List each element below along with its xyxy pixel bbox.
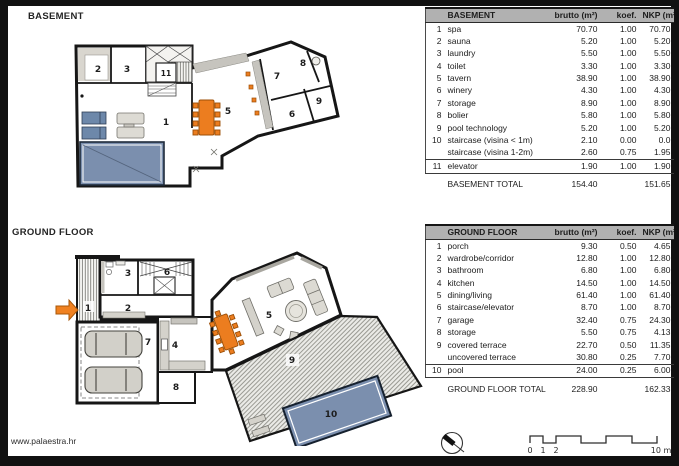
table-cell: sauna xyxy=(445,35,546,47)
table-cell: staircase/elevator xyxy=(445,302,546,314)
table-cell: 0.00 xyxy=(601,135,640,147)
table-cell: 1.00 xyxy=(601,48,640,60)
table-row: 4kitchen14.501.0014.50 xyxy=(426,277,674,289)
room-label: 4 xyxy=(172,341,178,351)
table-total-row: BASEMENT TOTAL 154.40 151.65 xyxy=(426,173,674,193)
table-cell: 1 xyxy=(426,23,445,36)
table-cell: 5.20 xyxy=(546,122,601,134)
table-cell: 7 xyxy=(426,97,445,109)
table-cell: 0.50 xyxy=(601,339,640,351)
table-cell: spa xyxy=(445,23,546,36)
header-koef: koef. xyxy=(601,8,640,23)
table-cell: 5.20 xyxy=(640,35,674,47)
boiler-unit xyxy=(312,57,320,65)
total-brutto: 154.40 xyxy=(546,173,601,193)
table-cell: 32.40 xyxy=(546,314,601,326)
table-row: 7storage8.901.008.90 xyxy=(426,97,674,109)
header-room: GROUND FLOOR xyxy=(445,225,546,240)
header-nkp: NKP (m²) xyxy=(640,225,674,240)
table-cell: 5 xyxy=(426,290,445,302)
table-cell: 22.70 xyxy=(546,339,601,351)
room-label: 6 xyxy=(289,110,295,120)
basement-pool xyxy=(80,142,164,185)
room-label: 3 xyxy=(124,65,130,75)
basement-table: BASEMENT brutto (m²) koef. NKP (m²) 1spa… xyxy=(425,7,674,193)
table-cell: 9 xyxy=(426,122,445,134)
table-cell: 5.20 xyxy=(546,35,601,47)
room-label: 9 xyxy=(289,356,295,366)
header-room: BASEMENT xyxy=(445,8,546,23)
table-cell: storage xyxy=(445,97,546,109)
table-cell: 1.90 xyxy=(640,160,674,173)
table-cell: 8.70 xyxy=(640,302,674,314)
table-cell: 1.00 xyxy=(601,110,640,122)
garage-car xyxy=(85,367,142,393)
table-cell: 6 xyxy=(426,85,445,97)
table-cell: 3.30 xyxy=(546,60,601,72)
table-cell: uncovered terrace xyxy=(445,352,546,365)
scale-label: 0 xyxy=(527,446,532,455)
entrance-arrow-icon xyxy=(56,300,78,320)
scale-label: 1 xyxy=(540,446,545,455)
table-cell: 8.90 xyxy=(640,97,674,109)
table-row: 3bathroom6.801.006.80 xyxy=(426,265,674,277)
table-row: 8storage5.500.754.13 xyxy=(426,327,674,339)
table-cell: 61.40 xyxy=(546,290,601,302)
table-cell: 3 xyxy=(426,48,445,60)
legend: 0 1 2 10 m xyxy=(430,424,672,460)
floor-plan-sheet: BASEMENT GROUND FLOOR www.palaestra.hr xyxy=(0,0,679,466)
table-cell: 8 xyxy=(426,327,445,339)
table-cell: kitchen xyxy=(445,277,546,289)
table-cell: bolier xyxy=(445,110,546,122)
room-label: 2 xyxy=(125,304,131,314)
table-cell: 6 xyxy=(426,302,445,314)
table-cell: 1.00 xyxy=(601,122,640,134)
table-cell: 38.90 xyxy=(546,73,601,85)
table-cell: 9 xyxy=(426,339,445,351)
table-cell xyxy=(426,147,445,160)
room-label: 2 xyxy=(95,65,101,75)
header-brutto: brutto (m²) xyxy=(546,8,601,23)
table-cell: storage xyxy=(445,327,546,339)
table-cell: pool xyxy=(445,364,546,377)
table-cell: 5.20 xyxy=(640,122,674,134)
table-cell: 6.80 xyxy=(546,265,601,277)
table-cell: covered terrace xyxy=(445,339,546,351)
table-cell: staircase (visina < 1m) xyxy=(445,135,546,147)
room-label: 8 xyxy=(300,59,306,69)
table-cell: 4.30 xyxy=(546,85,601,97)
table-cell: 0.75 xyxy=(601,314,640,326)
table-cell xyxy=(426,352,445,365)
column-dot xyxy=(80,94,83,97)
table-cell: elevator xyxy=(445,160,546,173)
room-label: 3 xyxy=(125,269,131,279)
table-row: uncovered terrace30.800.257.70 xyxy=(426,352,674,365)
table-cell: 1 xyxy=(426,240,445,253)
scale-label: 10 m xyxy=(651,446,672,455)
total-nkp: 162.33 xyxy=(640,378,674,398)
table-cell: 0.25 xyxy=(601,352,640,365)
room-label: 7 xyxy=(274,72,280,82)
table-total-row: GROUND FLOOR TOTAL 228.90 162.33 xyxy=(426,378,674,398)
table-row: 10staircase (visina < 1m)2.100.000.0 xyxy=(426,135,674,147)
table-cell: bathroom xyxy=(445,265,546,277)
table-row: 1spa70.701.0070.70 xyxy=(426,23,674,36)
ground-floor-plan: 1 2 3 4 5 6 7 8 9 10 xyxy=(42,244,440,446)
table-cell: 1.00 xyxy=(601,290,640,302)
table-cell: 1.00 xyxy=(601,302,640,314)
table-cell: 1.00 xyxy=(601,23,640,36)
table-cell: 1.00 xyxy=(601,73,640,85)
coffee-table xyxy=(286,301,307,322)
table-cell: 7 xyxy=(426,314,445,326)
table-cell: 1.00 xyxy=(601,60,640,72)
table-cell: 4.30 xyxy=(640,85,674,97)
header-num xyxy=(426,225,445,240)
table-cell: 11 xyxy=(426,160,445,173)
header-koef: koef. xyxy=(601,225,640,240)
table-cell: 11.35 xyxy=(640,339,674,351)
table-cell: 5 xyxy=(426,73,445,85)
table-cell: garage xyxy=(445,314,546,326)
header-brutto: brutto (m²) xyxy=(546,225,601,240)
table-cell: 1.00 xyxy=(601,265,640,277)
table-cell: 1.00 xyxy=(601,35,640,47)
table-cell: 1.00 xyxy=(601,277,640,289)
table-row: staircase (visina 1-2m)2.600.751.95 xyxy=(426,147,674,160)
table-cell: 8 xyxy=(426,110,445,122)
table-cell: 70.70 xyxy=(640,23,674,36)
table-cell: 2 xyxy=(426,252,445,264)
table-cell: 0.25 xyxy=(601,364,640,377)
table-cell: 3.30 xyxy=(640,60,674,72)
table-cell: 10 xyxy=(426,364,445,377)
garage-car xyxy=(85,331,142,357)
room-label: 8 xyxy=(173,383,179,393)
basement-title: BASEMENT xyxy=(28,11,84,22)
table-row: 2sauna5.201.005.20 xyxy=(426,35,674,47)
table-row: 9pool technology5.201.005.20 xyxy=(426,122,674,134)
basement-floor-plan: 1 2 3 5 6 7 8 9 11 xyxy=(55,34,435,206)
header-num xyxy=(426,8,445,23)
table-cell: 8.90 xyxy=(546,97,601,109)
table-cell: 14.50 xyxy=(640,277,674,289)
table-cell: 12.80 xyxy=(640,252,674,264)
porch-top-wall xyxy=(75,255,120,259)
ground-left-block xyxy=(100,260,193,317)
total-label: GROUND FLOOR TOTAL xyxy=(445,378,546,398)
table-cell: 5.80 xyxy=(640,110,674,122)
table-row: 10pool24.000.256.00 xyxy=(426,364,674,377)
table-cell: 9.30 xyxy=(546,240,601,253)
scale-label: 2 xyxy=(553,446,558,455)
total-label: BASEMENT TOTAL xyxy=(445,173,546,193)
room-label: 1 xyxy=(85,304,91,314)
table-row: 11elevator1.901.001.90 xyxy=(426,160,674,173)
table-cell: 30.80 xyxy=(546,352,601,365)
table-cell: 38.90 xyxy=(640,73,674,85)
table-row: 5tavern38.901.0038.90 xyxy=(426,73,674,85)
room-label: 1 xyxy=(163,118,169,128)
table-cell: 70.70 xyxy=(546,23,601,36)
table-cell: 1.00 xyxy=(601,97,640,109)
table-cell: laundry xyxy=(445,48,546,60)
table-cell: 8.70 xyxy=(546,302,601,314)
room-label: 11 xyxy=(161,69,171,78)
table-cell: 4.65 xyxy=(640,240,674,253)
table-row: 8bolier5.801.005.80 xyxy=(426,110,674,122)
table-cell: 2.60 xyxy=(546,147,601,160)
table-cell: 1.90 xyxy=(546,160,601,173)
table-row: 6staircase/elevator8.701.008.70 xyxy=(426,302,674,314)
table-cell: 4 xyxy=(426,277,445,289)
table-row: 3laundry5.501.005.50 xyxy=(426,48,674,60)
total-brutto: 228.90 xyxy=(546,378,601,398)
scale-bar: 0 1 2 10 m xyxy=(527,436,671,455)
table-cell: 0.75 xyxy=(601,147,640,160)
table-cell: tavern xyxy=(445,73,546,85)
table-cell: 4 xyxy=(426,60,445,72)
table-cell: 2.10 xyxy=(546,135,601,147)
table-header-row: GROUND FLOOR brutto (m²) koef. NKP (m²) xyxy=(426,225,674,240)
table-cell: 5.50 xyxy=(640,48,674,60)
compass-icon xyxy=(442,433,465,454)
room-label: 10 xyxy=(325,410,338,420)
table-cell: 12.80 xyxy=(546,252,601,264)
header-nkp: NKP (m²) xyxy=(640,8,674,23)
table-cell: 6.80 xyxy=(640,265,674,277)
table-cell: 24.00 xyxy=(546,364,601,377)
table-cell: toilet xyxy=(445,60,546,72)
table-cell: 61.40 xyxy=(640,290,674,302)
table-cell: 14.50 xyxy=(546,277,601,289)
ground-floor-title: GROUND FLOOR xyxy=(12,227,94,238)
table-header-row: BASEMENT brutto (m²) koef. NKP (m²) xyxy=(426,8,674,23)
table-cell: 1.00 xyxy=(601,252,640,264)
table-cell: porch xyxy=(445,240,546,253)
table-row: 1porch9.300.504.65 xyxy=(426,240,674,253)
table-row: 9covered terrace22.700.5011.35 xyxy=(426,339,674,351)
table-cell: 1.95 xyxy=(640,147,674,160)
room-label: 5 xyxy=(225,107,231,117)
table-cell: 5.80 xyxy=(546,110,601,122)
table-cell: wardrobe/corridor xyxy=(445,252,546,264)
table-cell: pool technology xyxy=(445,122,546,134)
table-cell: 1.00 xyxy=(601,160,640,173)
table-cell: 1.00 xyxy=(601,85,640,97)
table-row: 5dining/living61.401.0061.40 xyxy=(426,290,674,302)
table-cell: 5.50 xyxy=(546,48,601,60)
table-cell: dining/living xyxy=(445,290,546,302)
table-cell: 24.30 xyxy=(640,314,674,326)
table-cell: 10 xyxy=(426,135,445,147)
table-cell: winery xyxy=(445,85,546,97)
table-row: 2wardrobe/corridor12.801.0012.80 xyxy=(426,252,674,264)
table-cell: 2 xyxy=(426,35,445,47)
table-row: 4toilet3.301.003.30 xyxy=(426,60,674,72)
table-cell: 0.0 xyxy=(640,135,674,147)
room-label: 6 xyxy=(164,268,170,278)
total-nkp: 151.65 xyxy=(640,173,674,193)
table-cell: 6.00 xyxy=(640,364,674,377)
table-cell: 4.13 xyxy=(640,327,674,339)
table-cell: 7.70 xyxy=(640,352,674,365)
room-label: 7 xyxy=(145,338,151,348)
table-cell: 5.50 xyxy=(546,327,601,339)
table-row: 7garage32.400.7524.30 xyxy=(426,314,674,326)
room-label: 5 xyxy=(266,311,272,321)
table-cell: staircase (visina 1-2m) xyxy=(445,147,546,160)
table-cell: 3 xyxy=(426,265,445,277)
table-cell: 0.75 xyxy=(601,327,640,339)
ground-floor-table: GROUND FLOOR brutto (m²) koef. NKP (m²) … xyxy=(425,224,674,397)
table-row: 6winery4.301.004.30 xyxy=(426,85,674,97)
room-label: 9 xyxy=(316,97,322,107)
table-cell: 0.50 xyxy=(601,240,640,253)
